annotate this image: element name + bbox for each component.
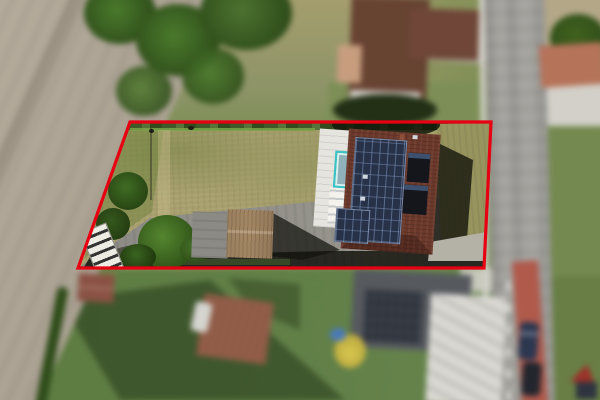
property-boundary <box>78 122 491 268</box>
aerial-photo <box>0 0 600 400</box>
boundary-overlay <box>0 0 600 400</box>
